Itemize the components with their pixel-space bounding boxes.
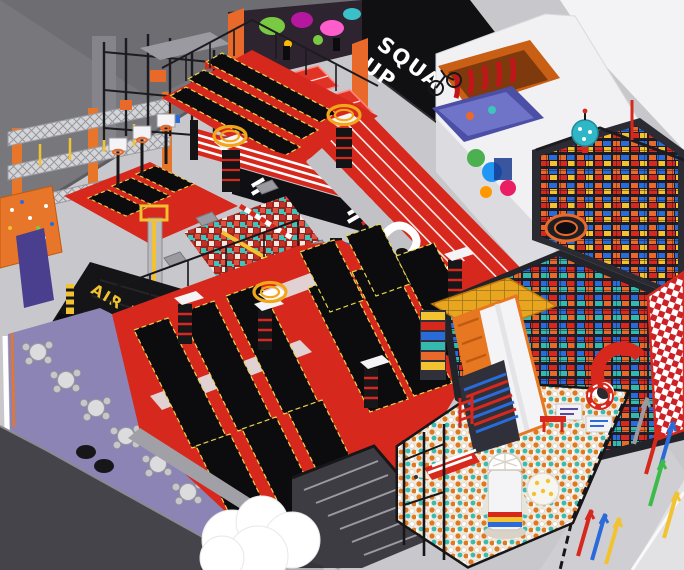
checker-slide <box>648 272 684 440</box>
crate-stack <box>420 310 446 380</box>
dotted-ball <box>527 473 559 505</box>
red-bench-prop <box>540 416 566 422</box>
park-render: SQUAD UP <box>0 0 684 570</box>
signage-panel <box>586 416 612 432</box>
crawl-barrel <box>546 215 586 241</box>
